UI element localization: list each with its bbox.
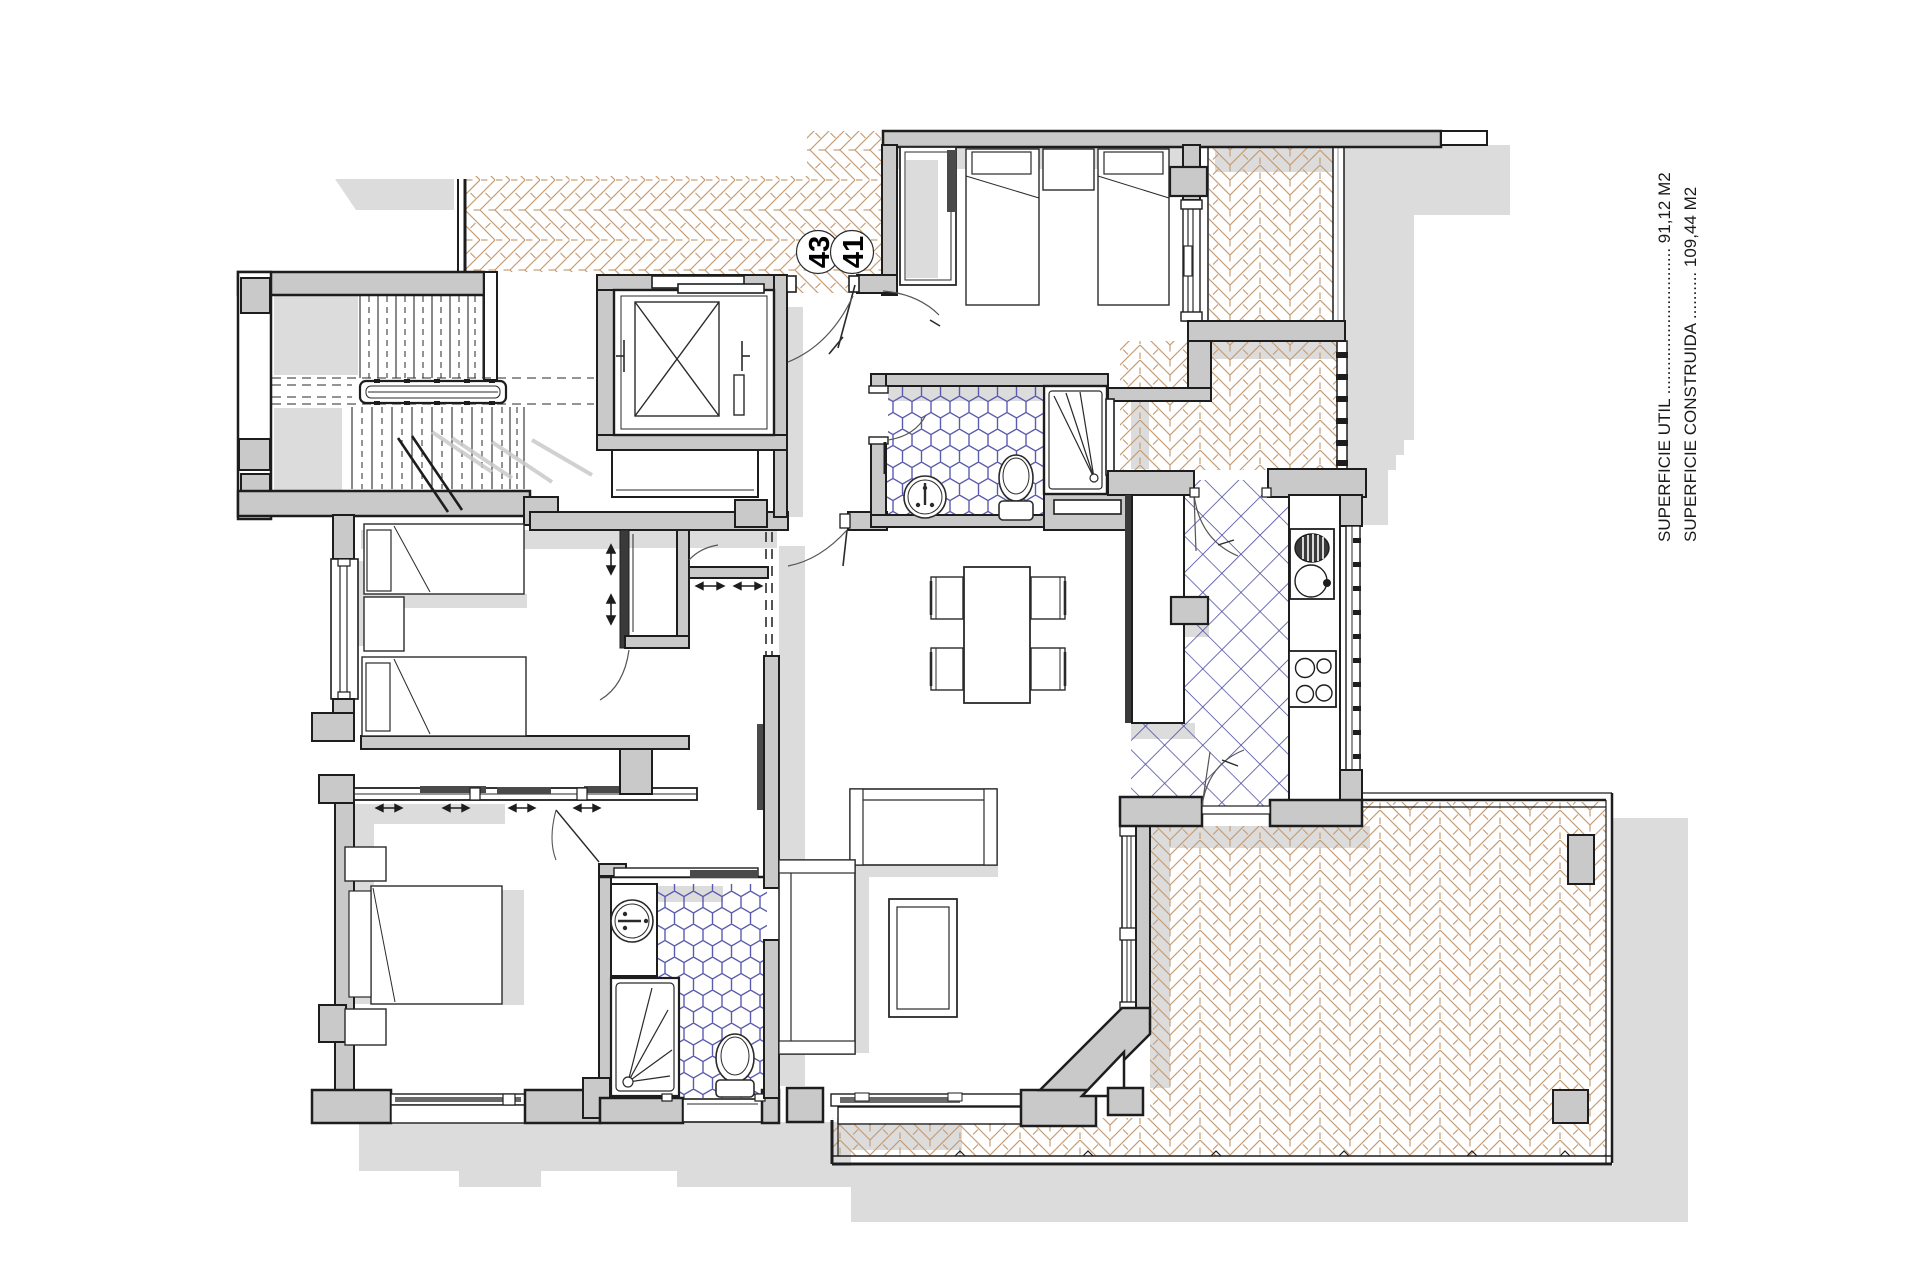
svg-text:41: 41 <box>838 236 870 268</box>
svg-text:SUPERFICIE CONSTRUIDA ........: SUPERFICIE CONSTRUIDA .......... 109,44 … <box>1681 187 1700 542</box>
svg-text:SUPERFICIE UTIL ..............: SUPERFICIE UTIL ........................… <box>1655 172 1674 542</box>
